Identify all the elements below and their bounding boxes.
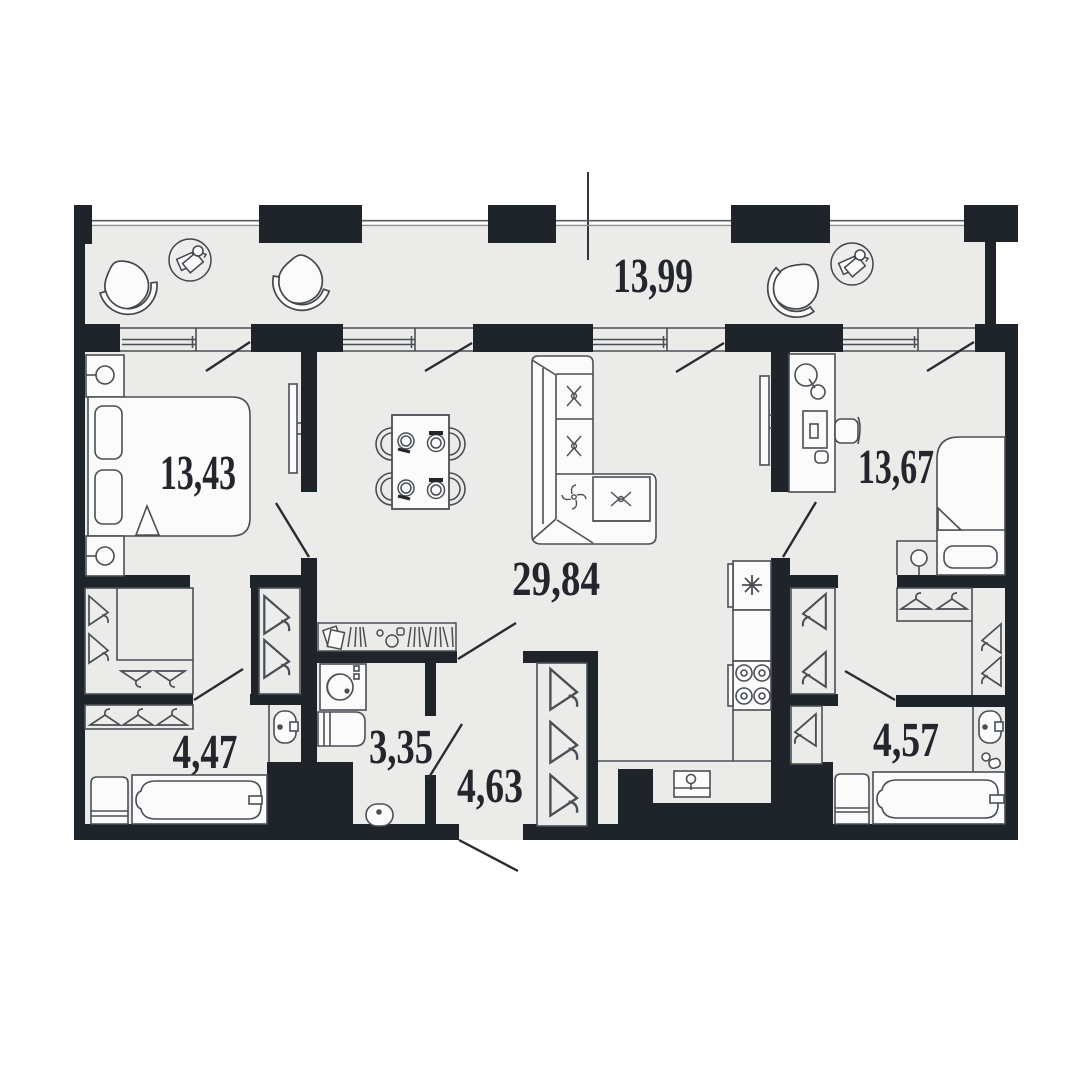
svg-text:4,63: 4,63 <box>457 758 523 813</box>
svg-text:4,57: 4,57 <box>873 712 939 767</box>
svg-text:13,99: 13,99 <box>613 248 693 303</box>
svg-text:13,43: 13,43 <box>160 445 236 500</box>
svg-text:13,67: 13,67 <box>858 439 934 494</box>
svg-text:3,35: 3,35 <box>369 719 433 774</box>
svg-text:29,84: 29,84 <box>512 551 600 606</box>
svg-text:4,47: 4,47 <box>173 724 238 779</box>
